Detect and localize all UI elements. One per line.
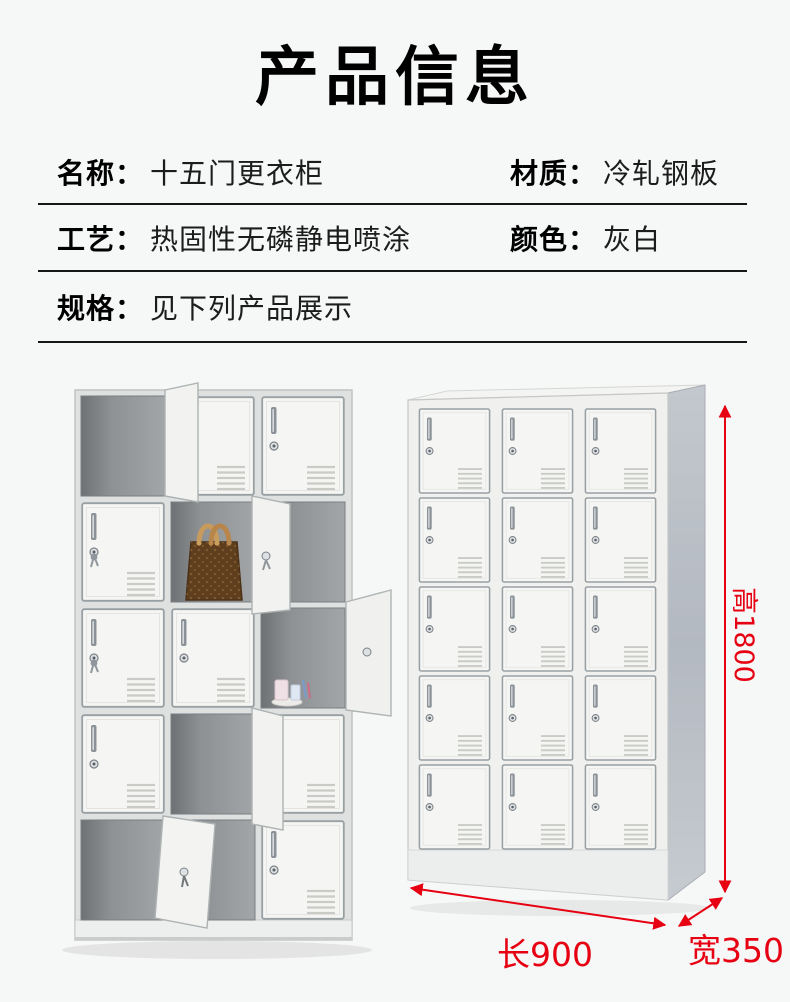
spec-cell-material: 材质： 冷轧钢板 [510, 152, 747, 192]
locker-door-closed [585, 498, 655, 582]
spec-table: 名称： 十五门更衣柜 材质： 冷轧钢板 工艺： 热固性无磷静电喷涂 颜色： 灰白… [38, 140, 747, 343]
open-compartment [81, 396, 165, 496]
spec-label-color: 颜色： [510, 218, 597, 258]
right-locker-side [668, 385, 705, 900]
open-compartment-with-items [261, 608, 345, 708]
locker-door-closed [502, 676, 572, 760]
spec-cell-name: 名称： 十五门更衣柜 [38, 152, 510, 192]
spec-row: 规格： 见下列产品展示 [38, 272, 747, 343]
right-locker-shadow [410, 900, 710, 916]
locker-door-open [165, 383, 198, 502]
spec-cell-process: 工艺： 热固性无磷静电喷涂 [38, 218, 510, 258]
locker-door-closed [419, 498, 489, 582]
spec-row: 名称： 十五门更衣柜 材质： 冷轧钢板 [38, 140, 747, 205]
locker-door-closed [585, 765, 655, 849]
spec-label-material: 材质： [510, 152, 597, 192]
spec-value-name: 十五门更衣柜 [150, 152, 324, 192]
locker-door-open [252, 708, 283, 830]
left-locker-image [45, 380, 395, 1002]
spec-label-spec: 规格： [57, 287, 144, 327]
spec-label-name: 名称： [57, 152, 144, 192]
width-dimension-label: 宽350 [688, 931, 784, 970]
locker-door-closed [82, 609, 164, 707]
locker-door-closed [82, 715, 164, 813]
locker-door-closed [172, 609, 254, 707]
locker-door-open [346, 590, 391, 716]
spec-value-process: 热固性无磷静电喷涂 [150, 218, 411, 258]
left-locker-shadow [62, 941, 372, 959]
height-dimension-label: 高1800 [728, 587, 759, 683]
spec-value-material: 冷轧钢板 [603, 152, 719, 192]
spec-cell-color: 颜色： 灰白 [510, 218, 747, 258]
left-locker-plinth-edge [75, 937, 352, 940]
locker-door-closed [585, 409, 655, 493]
spec-label-process: 工艺： [57, 218, 144, 258]
open-compartment [171, 714, 255, 814]
locker-door-closed [419, 765, 489, 849]
locker-door-closed [585, 587, 655, 671]
length-dimension-label: 长900 [497, 935, 593, 974]
locker-door-half-open [155, 816, 215, 928]
locker-door-closed [419, 587, 489, 671]
right-locker-image: 高1800 长900 宽350 [395, 380, 790, 1002]
locker-door-closed [502, 587, 572, 671]
locker-door-closed [502, 498, 572, 582]
page-title: 产品信息 [0, 0, 790, 114]
locker-door-closed [502, 765, 572, 849]
locker-door-closed [262, 821, 344, 919]
locker-door-closed [419, 409, 489, 493]
locker-door-open [252, 496, 290, 614]
spec-value-color: 灰白 [603, 218, 661, 258]
spec-value-spec: 见下列产品展示 [150, 287, 353, 327]
spec-cell-spec: 规格： 见下列产品展示 [38, 287, 510, 327]
product-info-page: 产品信息 名称： 十五门更衣柜 材质： 冷轧钢板 工艺： 热固性无磷静电喷涂 颜… [0, 0, 790, 1002]
spec-row: 工艺： 热固性无磷静电喷涂 颜色： 灰白 [38, 205, 747, 272]
locker-door-closed [585, 676, 655, 760]
locker-door-closed [419, 676, 489, 760]
product-images: 高1800 长900 宽350 [0, 380, 790, 1002]
locker-door-closed [82, 503, 164, 601]
open-compartment [81, 820, 165, 920]
locker-door-closed [502, 409, 572, 493]
locker-door-closed [262, 397, 344, 495]
